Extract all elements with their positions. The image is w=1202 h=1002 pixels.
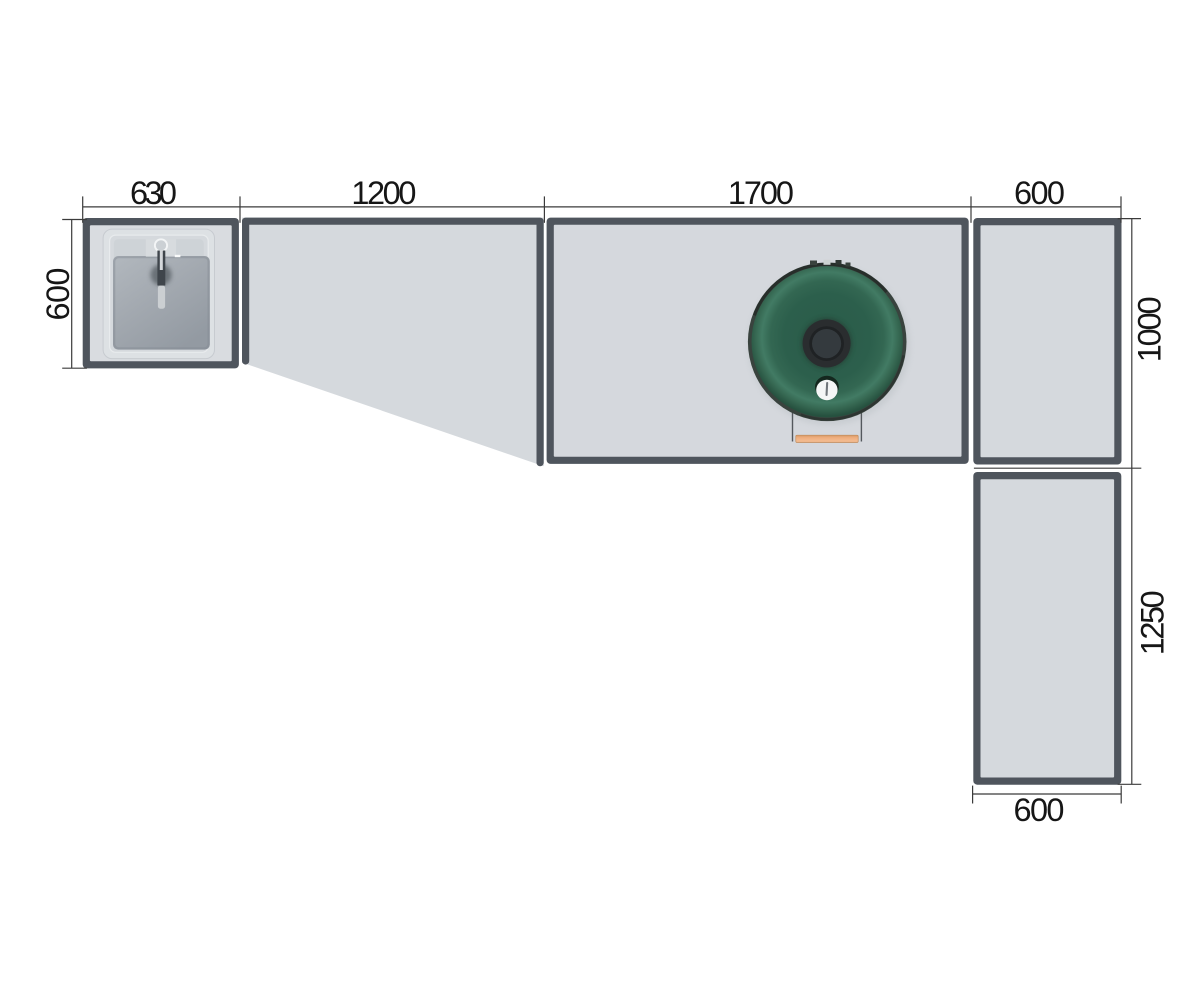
svg-text:600: 600	[1014, 175, 1065, 211]
svg-text:1200: 1200	[351, 175, 416, 211]
svg-text:630: 630	[130, 175, 177, 211]
svg-text:1250: 1250	[1135, 590, 1171, 655]
svg-text:1000: 1000	[1132, 296, 1168, 362]
svg-text:1700: 1700	[728, 175, 794, 211]
svg-text:600: 600	[1014, 792, 1065, 828]
svg-text:600: 600	[40, 268, 76, 321]
